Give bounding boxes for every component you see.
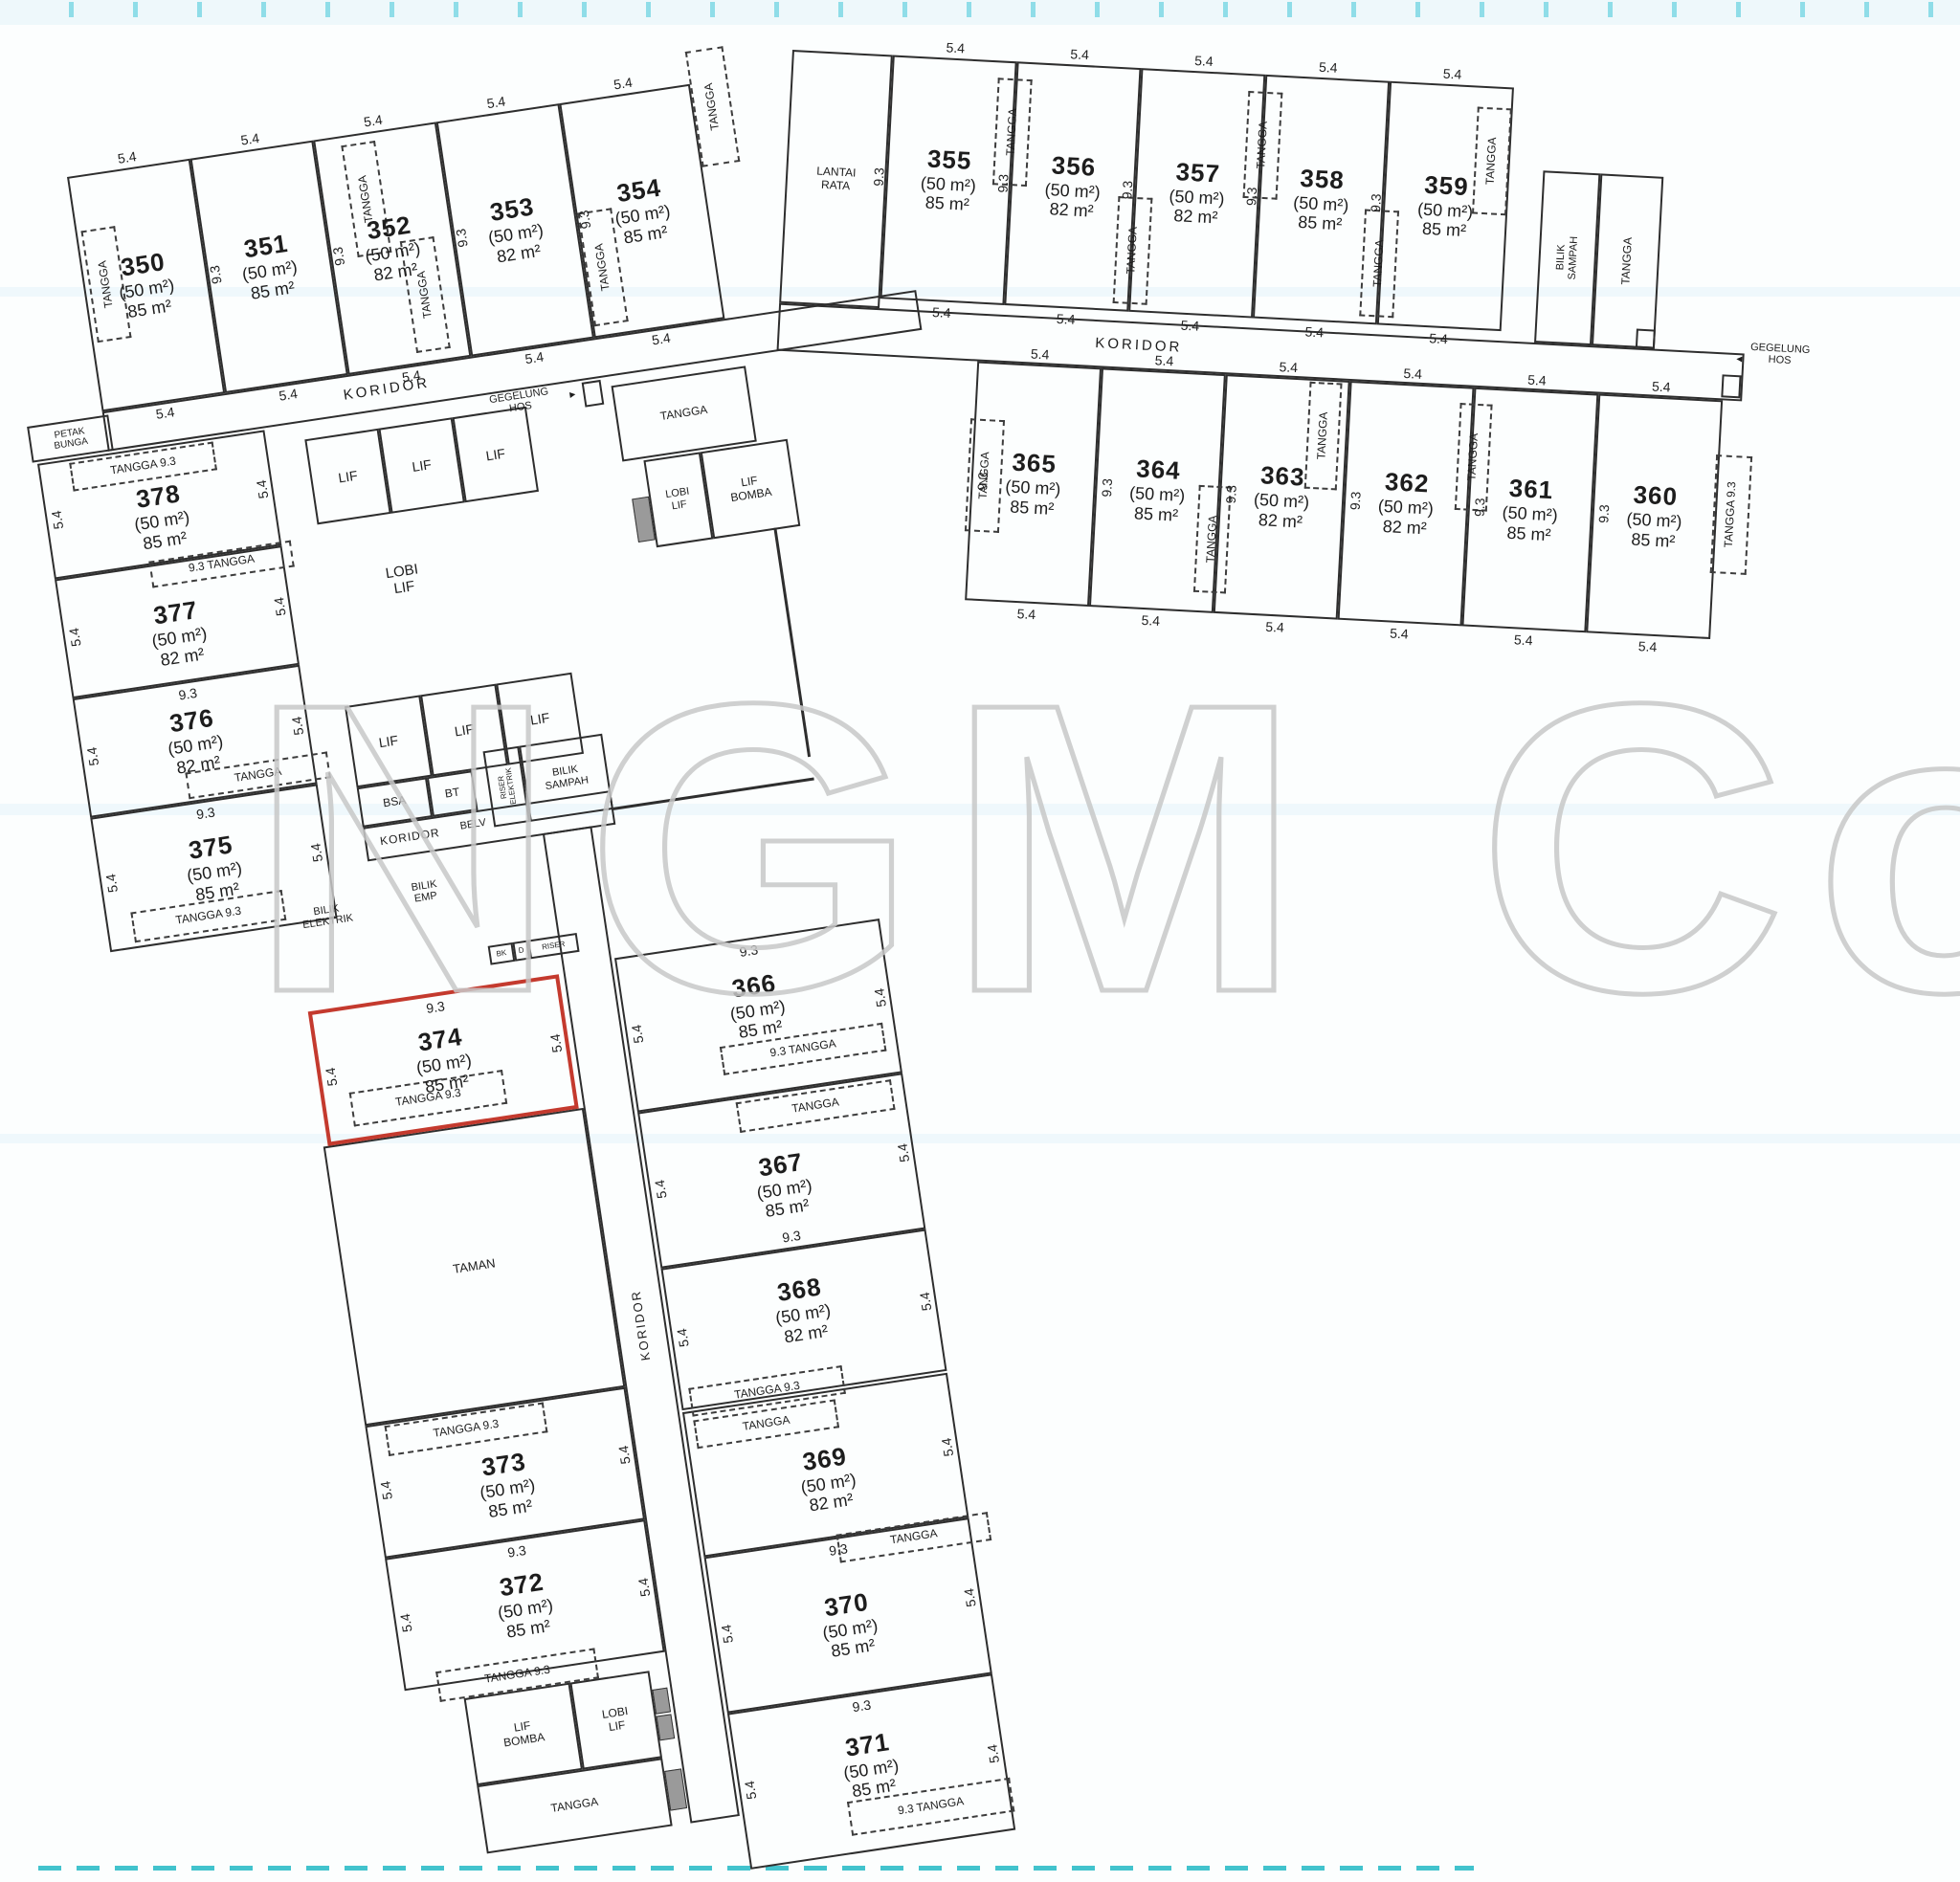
text-line: LIF	[454, 721, 475, 740]
dim-label: 5.4	[1265, 619, 1284, 635]
dim-label: 9.3	[195, 805, 216, 823]
dim-label: 5.4	[270, 596, 288, 617]
text-line: 365	[1006, 449, 1062, 480]
dim-label: 5.4	[1279, 359, 1298, 375]
text-line: LIF	[411, 456, 432, 475]
text-line: TANGGA	[1125, 227, 1140, 275]
dim-label: 5.4	[635, 1577, 653, 1598]
text-line: LIF	[666, 498, 692, 513]
text-line: TANGGA	[1255, 122, 1270, 169]
dim-label: 9.3	[1595, 504, 1612, 523]
dim-label: 9.3	[453, 228, 471, 249]
text-line: TANGGA	[1205, 515, 1220, 563]
text-line: LIF	[603, 1718, 631, 1736]
text-line: 9.3 TANGGA	[188, 553, 256, 576]
text-line: BSA	[382, 794, 407, 810]
dim-label: 5.4	[239, 130, 260, 148]
text-line: BK	[496, 948, 507, 959]
dim-label: 5.4	[1057, 311, 1076, 327]
dim-label: 5.4	[946, 39, 965, 55]
text-line: TANGGA	[1005, 108, 1020, 156]
text-line: TANGGA 9.3	[175, 905, 242, 928]
text-line: 362	[1378, 468, 1435, 499]
dim-label: 5.4	[1180, 318, 1199, 334]
text-line: TANGGA 9.3	[109, 455, 176, 478]
dim-label: 5.4	[1016, 606, 1036, 622]
dim-label: 5.4	[718, 1623, 736, 1644]
scan-streak	[0, 1134, 1960, 1143]
text-line: ►	[568, 389, 578, 402]
text-line: (50 m²)	[1377, 497, 1434, 520]
dim-label: 5.4	[253, 479, 271, 500]
stair-356-357: TANGGA	[1113, 196, 1153, 305]
dim-label: 9.3	[974, 472, 991, 491]
text-line: TANGGA	[1484, 137, 1500, 185]
dim-label: 5.4	[960, 1587, 978, 1608]
unit-362: 362(50 m²)82 m²5.45.49.3	[1338, 381, 1475, 626]
dim-label: 9.3	[1099, 478, 1115, 498]
stair-357-358: TANGGA	[1243, 91, 1283, 200]
text-line: ◄	[1734, 354, 1744, 365]
dim-label: 9.3	[828, 1540, 849, 1559]
dim-label: 5.4	[1141, 612, 1160, 629]
text-line: 85 m²	[1128, 503, 1185, 526]
text-line: 82 m²	[1043, 199, 1100, 222]
text-line: 85 m²	[1416, 219, 1473, 242]
text-line: 82 m²	[1376, 517, 1433, 540]
dim-label: 5.4	[652, 1179, 670, 1200]
text-line: TANGGA	[234, 765, 282, 786]
dim-label: 5.4	[117, 148, 138, 166]
text-line: 85 m²	[1501, 522, 1557, 545]
dim-label: 5.4	[1319, 59, 1338, 76]
text-line: LIF	[378, 732, 399, 750]
bilik-sampah-east: BILIKSAMPAH	[1534, 170, 1600, 345]
text-line: 363	[1255, 461, 1311, 493]
dim-label: 5.4	[1429, 330, 1448, 346]
dim-label: 9.3	[506, 1542, 527, 1561]
text-line: TANGGA	[1371, 239, 1387, 287]
text-line: TANGGA 9.3	[483, 1664, 550, 1687]
text-line: TANGGA 9.3	[733, 1380, 800, 1403]
text-line: 9.3 TANGGA	[769, 1037, 837, 1060]
dim-label: 9.3	[329, 246, 347, 267]
stair-355-356: TANGGA	[992, 77, 1033, 187]
text-line: TANGGA	[791, 1096, 839, 1117]
dim-label: 5.4	[323, 1067, 341, 1088]
text-line: EMP	[412, 890, 439, 905]
text-line: RISER	[542, 940, 567, 952]
text-line: TANGGA 9.3	[1723, 481, 1739, 548]
dim-label: 9.3	[851, 1696, 872, 1715]
dim-label: 5.4	[66, 627, 84, 648]
text-line: (50 m²)	[1626, 510, 1682, 533]
text-line: 359	[1418, 170, 1475, 202]
text-line: TANGGA	[889, 1527, 938, 1547]
dim-label: 5.4	[1442, 66, 1461, 82]
text-line: 82 m²	[1252, 510, 1308, 533]
stair-358-359: TANGGA	[1359, 210, 1399, 319]
wall-segment	[773, 527, 811, 757]
floor-plan-page: 350(50 m²)85 m²5.45.49.3351(50 m²)85 m²5…	[0, 0, 1960, 1882]
dim-label: 9.3	[1223, 484, 1239, 503]
unit-365: 365(50 m²)85 m²5.45.49.3	[965, 362, 1102, 607]
dim-label: 5.4	[363, 112, 384, 130]
bt-room: BT	[427, 770, 479, 817]
dim-label: 5.4	[1194, 53, 1214, 69]
dim-label: 5.4	[614, 1445, 633, 1466]
label-gegelung-hos-east: GEGELUNGHOS	[1749, 342, 1811, 368]
arrow-gegelung-east: ◄	[1734, 354, 1744, 365]
dim-label: 5.4	[486, 94, 507, 112]
text-line: KORIDOR	[629, 1288, 654, 1361]
dim-label: 5.4	[102, 873, 121, 894]
text-line: TANGGA	[659, 404, 708, 424]
dim-label: 5.4	[307, 842, 325, 863]
lobi-lif-south: LOBILIF	[569, 1671, 662, 1769]
dim-label: 9.3	[1368, 192, 1384, 211]
dim-label: 5.4	[932, 304, 951, 321]
text-line: TAMAN	[452, 1256, 496, 1276]
dim-label: 5.4	[83, 746, 101, 767]
dim-label: 5.4	[1403, 365, 1422, 382]
text-line: TANGGA	[702, 82, 723, 131]
text-line: 364	[1130, 454, 1187, 486]
text-line: 82 m²	[1168, 206, 1224, 229]
dim-label: 9.3	[781, 1228, 802, 1246]
dim-label: 5.4	[984, 1743, 1002, 1764]
dim-label: 9.3	[1243, 187, 1259, 206]
shaft-box	[657, 1714, 676, 1740]
text-line: RATA	[815, 178, 856, 193]
dim-label: 9.3	[995, 173, 1012, 192]
text-line: D	[518, 946, 524, 956]
text-line: (50 m²)	[1502, 503, 1558, 526]
unit-360: 360(50 m²)85 m²5.45.49.3	[1586, 394, 1723, 639]
text-line: TANGGA	[742, 1414, 791, 1434]
arrow-gegelung-core: ►	[568, 389, 578, 402]
text-line: (50 m²)	[1129, 483, 1186, 506]
dim-label: 5.4	[612, 75, 634, 93]
dim-label: 9.3	[575, 210, 593, 231]
gegelung-hos-box	[582, 380, 605, 408]
lif: LIF	[378, 417, 464, 514]
dim-label: 5.4	[546, 1033, 565, 1054]
dim-label: 5.4	[377, 1480, 395, 1501]
dim-label: 5.4	[1637, 638, 1657, 654]
scan-edge-ticks	[10, 2, 1960, 17]
dim-label: 9.3	[871, 166, 887, 186]
dim-label: 5.4	[278, 386, 299, 404]
dim-label: 5.4	[49, 510, 67, 531]
lif: LIF	[345, 695, 433, 787]
utility-box-bk: BK	[488, 942, 516, 965]
text-line: (50 m²)	[1005, 477, 1061, 500]
text-line: 85 m²	[1004, 497, 1060, 520]
stair-359: TANGGA	[1472, 107, 1512, 216]
text-line: TANGGA	[593, 243, 613, 292]
text-line: 355	[921, 144, 977, 176]
text-line: KORIDOR	[379, 827, 440, 849]
text-line: LIF	[337, 468, 358, 486]
label-lobi-lif-main: LOBILIF	[385, 562, 422, 598]
taman: TAMAN	[323, 1108, 626, 1426]
hose-notch-box	[1636, 329, 1656, 349]
label-bilik-emp: BILIKEMP	[411, 878, 439, 905]
text-line: KORIDOR	[343, 375, 432, 405]
dim-label: 5.4	[1390, 626, 1409, 642]
dim-label: 5.4	[916, 1292, 934, 1313]
text-line: BT	[444, 786, 460, 802]
dim-label: 9.3	[739, 941, 760, 960]
text-line: 356	[1045, 151, 1102, 183]
dim-label: 5.4	[1652, 378, 1671, 394]
dim-label: 5.4	[397, 1612, 415, 1633]
dim-label: 9.3	[1471, 498, 1487, 517]
lif-bomba-south: LIFBOMBA	[464, 1683, 583, 1786]
dim-label: 5.4	[1304, 323, 1324, 340]
stair-360: TANGGA 9.3	[1710, 454, 1752, 575]
text-line: 357	[1169, 158, 1226, 189]
dim-label: 5.4	[871, 987, 889, 1008]
text-line: SAMPAH	[1567, 236, 1581, 280]
text-line: TANGGA	[550, 1796, 599, 1816]
lif: LIF	[453, 407, 539, 503]
text-line: 358	[1294, 165, 1350, 196]
dim-label: 5.4	[674, 1327, 692, 1348]
dim-label: 5.4	[1154, 352, 1173, 368]
dim-label: 5.4	[1514, 631, 1533, 648]
dim-label: 9.3	[1119, 180, 1135, 199]
text-line: TANGGA	[1619, 237, 1635, 285]
lif-bomba-core: LIFBOMBA	[701, 439, 801, 540]
text-line: TANGGA	[1315, 411, 1330, 459]
text-line: LIF	[529, 710, 550, 728]
dim-label: 9.3	[425, 998, 446, 1016]
text-line: (50 m²)	[1253, 490, 1309, 513]
dim-label: 9.3	[1347, 491, 1364, 510]
dim-label: 5.4	[523, 349, 545, 367]
text-line: 85 m²	[1292, 212, 1348, 235]
text-line: TANGGA 9.3	[433, 1418, 500, 1441]
text-line: 360	[1627, 481, 1683, 513]
dim-label: 5.4	[629, 1023, 647, 1044]
text-line: 9.3 TANGGA	[897, 1795, 965, 1818]
gegelung-hos-box-east	[1721, 374, 1741, 398]
dim-label: 5.4	[155, 404, 176, 422]
text-line: LIF	[485, 446, 506, 464]
lif: LIF	[304, 429, 390, 525]
text-line: TANGGA	[1465, 433, 1481, 481]
dim-label: 9.3	[206, 264, 224, 285]
dim-label: 5.4	[1070, 46, 1089, 62]
dim-label: 5.4	[1527, 372, 1547, 388]
stair-362-361: TANGGA	[1455, 403, 1493, 512]
dim-label: 9.3	[177, 685, 198, 703]
text-line: 85 m²	[919, 193, 975, 216]
text-line: LIF	[387, 578, 421, 599]
dim-label: 5.4	[938, 1436, 956, 1457]
shaft-box	[652, 1688, 671, 1715]
dim-label: 5.4	[288, 716, 306, 737]
dim-label: 5.4	[651, 330, 672, 348]
tangga-east: TANGGA	[1592, 173, 1663, 348]
dim-label: 5.4	[1031, 345, 1050, 362]
text-line: 85 m²	[1625, 529, 1682, 552]
dim-label: 5.4	[742, 1780, 760, 1801]
text-line: TANGGA	[97, 260, 117, 309]
dim-label: 5.4	[894, 1142, 912, 1163]
text-line: 361	[1503, 475, 1559, 506]
